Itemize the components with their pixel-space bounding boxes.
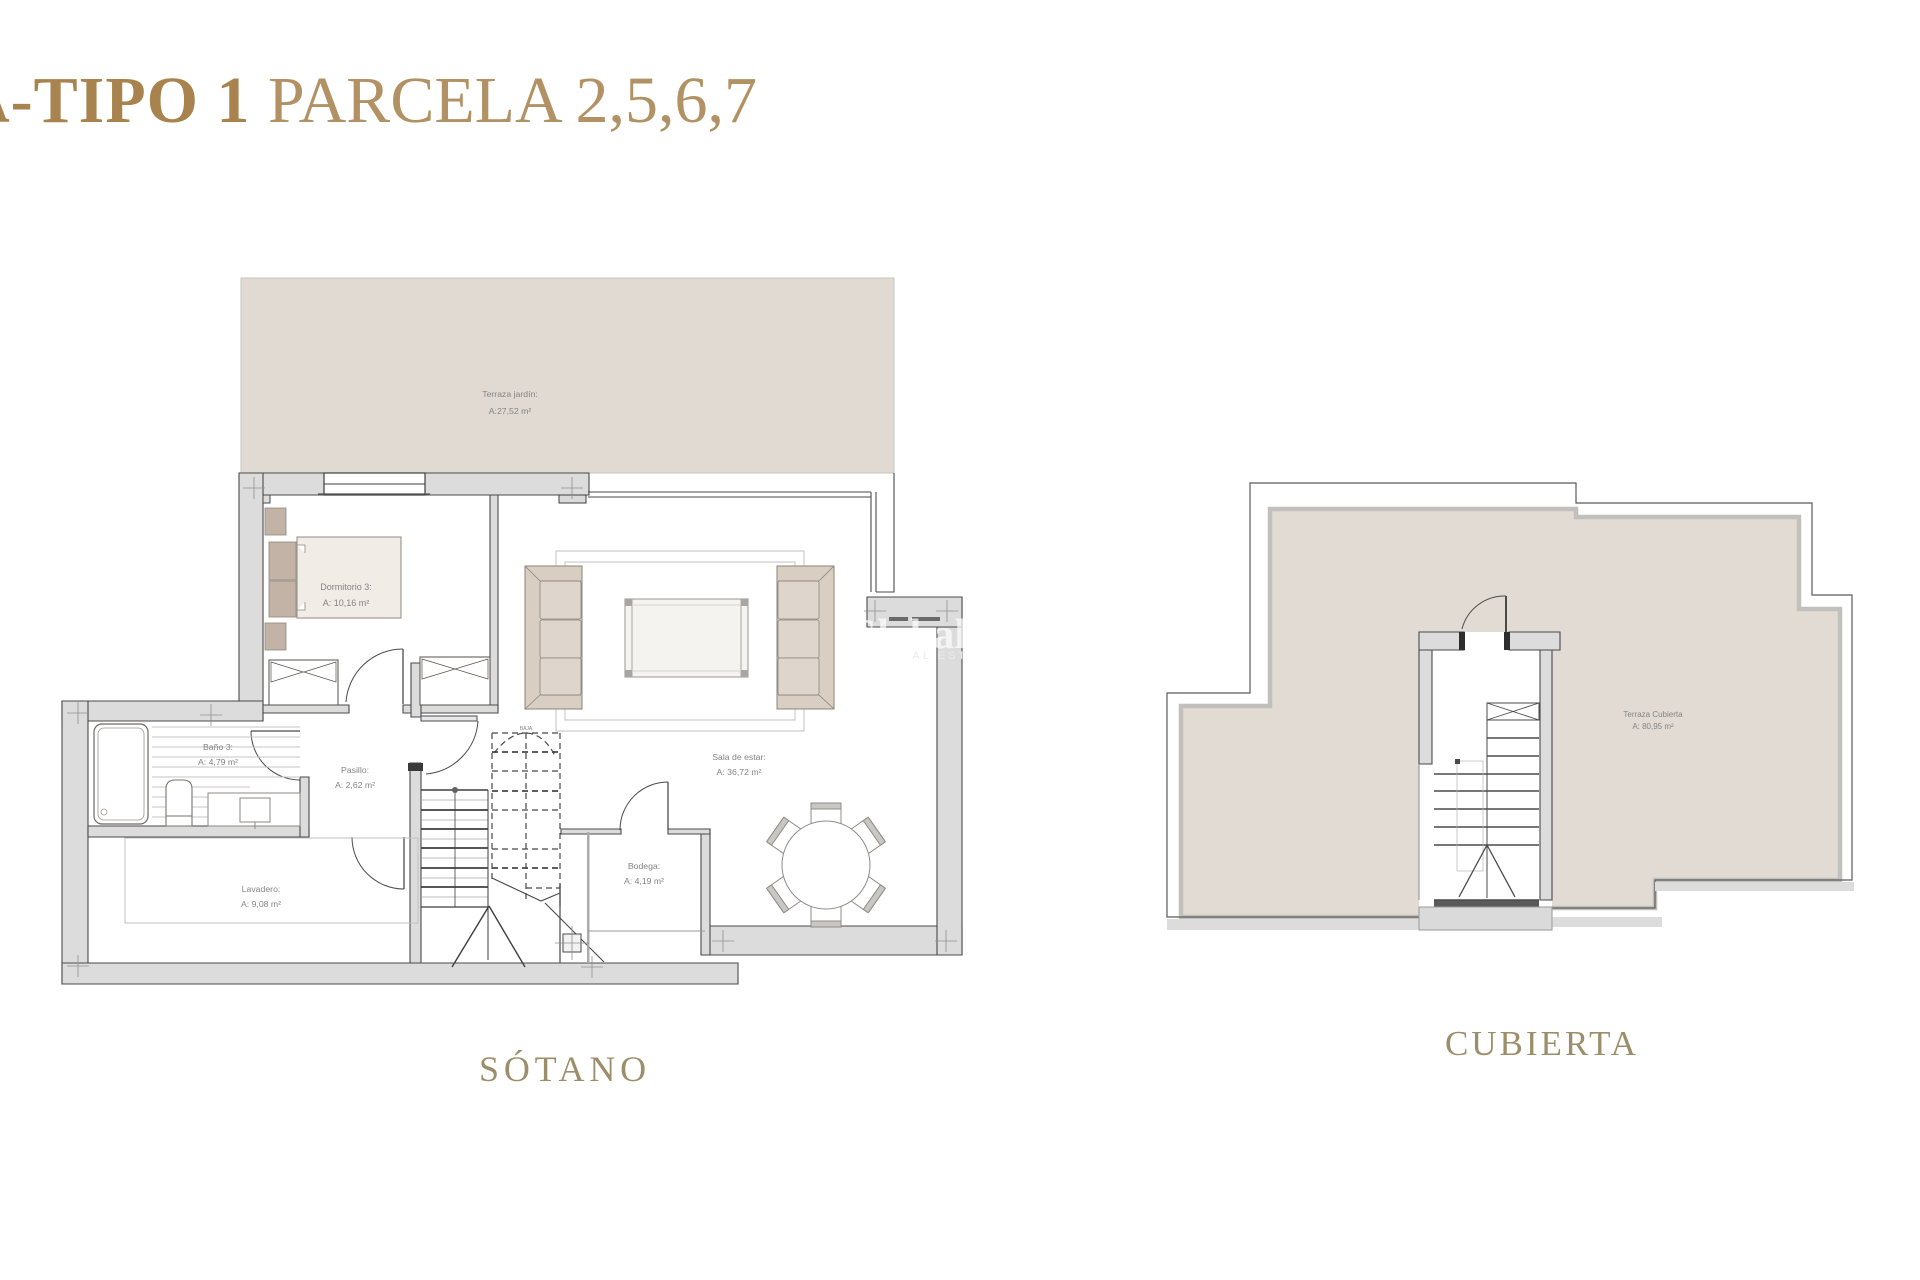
- svg-text:Bodega:: Bodega:: [628, 861, 660, 871]
- svg-text:SÓTANO: SÓTANO: [479, 1049, 651, 1089]
- svg-text:Lavadero:: Lavadero:: [242, 884, 281, 894]
- svg-text:A: 9,08 m²: A: 9,08 m²: [241, 899, 281, 909]
- svg-text:CUBIERTA: CUBIERTA: [1445, 1024, 1639, 1063]
- svg-text:A-TIPO 1: A-TIPO 1: [0, 64, 251, 137]
- svg-text:Dormitorio 3:: Dormitorio 3:: [320, 582, 372, 592]
- svg-text:A: 10,16 m²: A: 10,16 m²: [323, 598, 370, 608]
- svg-text:Terraza Cubierta: Terraza Cubierta: [1623, 710, 1683, 719]
- svg-text:A: 36,72 m²: A: 36,72 m²: [717, 767, 762, 777]
- svg-text:AL EST: AL EST: [913, 650, 969, 662]
- svg-text:Baño 3:: Baño 3:: [203, 742, 233, 752]
- svg-text:Pasillo:: Pasillo:: [341, 765, 369, 775]
- svg-text:Sala de estar:: Sala de estar:: [712, 752, 766, 762]
- svg-text:A: 80,95 m²: A: 80,95 m²: [1632, 722, 1674, 731]
- svg-text:A: 4,79 m²: A: 4,79 m²: [198, 757, 238, 767]
- svg-text:A: 4,19 m²: A: 4,19 m²: [624, 876, 664, 886]
- svg-text:BAJA: BAJA: [520, 726, 533, 732]
- svg-text:Terraza jardín:: Terraza jardín:: [482, 389, 538, 399]
- svg-text:A:27,52 m²: A:27,52 m²: [489, 406, 532, 416]
- svg-text:A: 2,62 m²: A: 2,62 m²: [335, 780, 375, 790]
- svg-text:PARCELA 2,5,6,7: PARCELA 2,5,6,7: [268, 64, 757, 137]
